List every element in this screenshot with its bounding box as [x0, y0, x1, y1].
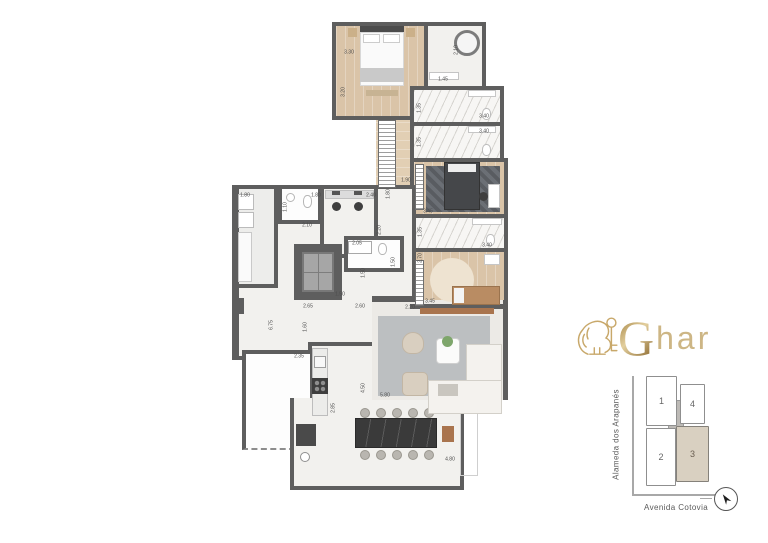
dim-label: 1.35: [418, 137, 423, 147]
dryer: [238, 212, 254, 228]
keyplan-unit-4: 4: [680, 384, 705, 424]
pillow: [363, 34, 380, 43]
dim-label: 2.65: [303, 305, 313, 310]
pillow: [383, 34, 400, 43]
vanity: [472, 218, 502, 225]
sofa-cushion: [438, 384, 458, 396]
elevator-cab: [302, 252, 334, 292]
dim-label: 1.35: [419, 227, 424, 237]
unit-number: 3: [690, 449, 695, 459]
armchair: [402, 332, 424, 354]
dim-label: 3.20: [342, 87, 347, 97]
dim-label: 2.20: [378, 225, 383, 235]
counter: [238, 232, 252, 282]
unit-number: 1: [659, 396, 664, 406]
street-label-bottom: Avenida Cotovia: [644, 503, 708, 512]
street-label-left: Alameda dos Arapanés: [612, 389, 621, 481]
compass-tick: [700, 498, 712, 499]
bar-cabinet: [442, 426, 454, 442]
toilet: [378, 243, 387, 255]
dim-label: 1.50: [335, 293, 345, 298]
dining-chair: [360, 450, 370, 460]
stairs: [378, 120, 396, 188]
pillow: [454, 288, 464, 303]
bed-throw: [360, 68, 404, 82]
vanity: [468, 90, 496, 97]
dining-chair: [408, 408, 418, 418]
chair: [479, 192, 488, 201]
bench: [366, 90, 398, 96]
lion-key-logo-icon: [570, 311, 624, 365]
brand-text: har: [656, 320, 711, 357]
desk: [488, 184, 500, 208]
site-key-plan: Alameda dos Arapanés Avenida Cotovia 1 4…: [596, 370, 756, 522]
compass: [714, 487, 738, 511]
dim-label: 5.80: [380, 394, 390, 399]
dim-label: 3.40: [479, 130, 489, 135]
dim-label: 3.45: [423, 210, 433, 215]
page: 3.30 3.20 2.10 1.45 1.35 3.40 1.35 3.40 …: [0, 0, 768, 543]
dining-chair: [424, 450, 434, 460]
monitor: [354, 191, 362, 195]
brand-letter-g: G: [618, 313, 654, 363]
unit-number: 2: [658, 452, 663, 462]
dim-label: 1.80: [311, 194, 321, 199]
plant: [442, 336, 453, 347]
kitchen-sink: [314, 356, 326, 368]
dim-label: 2.60: [355, 305, 365, 310]
dim-label: 1.80: [240, 194, 250, 199]
wall: [372, 296, 420, 302]
pillow: [448, 164, 476, 172]
chair: [332, 202, 341, 211]
dim-label: 2.05: [352, 242, 362, 247]
sink: [286, 193, 295, 202]
cabinet-dark: [296, 424, 316, 446]
closet-bedroom-2: [415, 164, 424, 210]
dim-label: 3.30: [344, 51, 354, 56]
dining-chair: [408, 450, 418, 460]
dim-label: 2.35: [294, 355, 304, 360]
desk: [484, 254, 500, 265]
north-arrow-icon: [718, 491, 734, 507]
keyplan-unit-3-highlighted: 3: [676, 426, 709, 482]
unit-number: 4: [690, 399, 695, 409]
brand-logo: G har: [570, 308, 740, 368]
dim-label: 2.20: [405, 306, 415, 311]
armchair: [402, 372, 428, 396]
dim-label: 1.90: [401, 179, 411, 184]
cooktop: [312, 378, 328, 394]
dim-label: 6.75: [270, 320, 275, 330]
dim-label: 1.35: [418, 103, 423, 113]
dim-label: 1.60: [304, 322, 309, 332]
dining-chair: [392, 450, 402, 460]
dim-label: 2.10: [302, 224, 312, 229]
dining-chair: [392, 408, 402, 418]
dim-label: 1.45: [438, 78, 448, 83]
closet-bedroom-3: [415, 260, 424, 306]
toilet: [482, 144, 491, 156]
dim-label: 2.40: [366, 194, 376, 199]
floor-plan: 3.30 3.20 2.10 1.45 1.35 3.40 1.35 3.40 …: [232, 20, 522, 500]
dining-chair: [360, 408, 370, 418]
dim-label: 2.85: [332, 403, 337, 413]
dim-label: 3.40: [482, 244, 492, 249]
nightstand: [406, 28, 415, 37]
dining-chair: [376, 408, 386, 418]
round-sink: [300, 452, 310, 462]
dim-label: 2.70: [419, 253, 424, 263]
chair: [354, 202, 363, 211]
dim-label: 1.50: [392, 257, 397, 267]
dim-label: 1.10: [284, 202, 289, 212]
dim-label: 4.80: [445, 458, 455, 463]
dim-label: 3.45: [425, 300, 435, 305]
keyplan-unit-1: 1: [646, 376, 677, 426]
dim-label: 4.50: [362, 383, 367, 393]
dim-label: 3.40: [479, 115, 489, 120]
dim-label: 2.10: [455, 45, 460, 55]
monitor: [332, 191, 340, 195]
street-line-vertical: [632, 376, 634, 494]
dim-label: 1.80: [387, 189, 392, 199]
dining-table: [355, 418, 437, 448]
nightstand: [348, 28, 357, 37]
keyplan-unit-2: 2: [646, 428, 676, 486]
dim-label: 1.50: [362, 268, 367, 278]
dining-chair: [376, 450, 386, 460]
tv-panel: [420, 308, 494, 314]
